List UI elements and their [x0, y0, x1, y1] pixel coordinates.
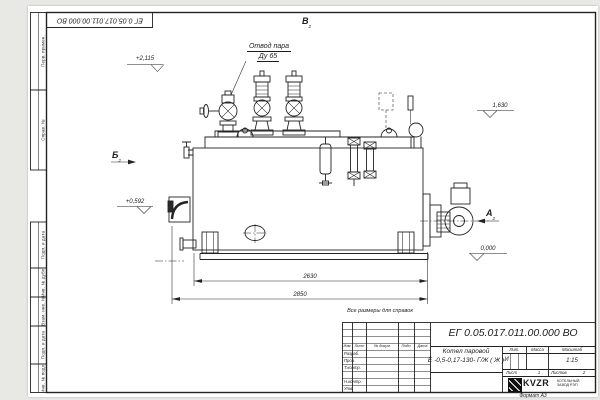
view-label-v: В2 [302, 12, 311, 30]
elevation-ground: 0,000 [480, 246, 495, 252]
level-rod [408, 96, 413, 124]
lit-value: И [504, 357, 508, 363]
water-column [319, 137, 332, 185]
row-razrab: Разраб. [344, 352, 359, 356]
margin-label-perv-primen: Перв. примен. [40, 35, 45, 67]
steam-leader [231, 61, 246, 95]
sheets-value: 2 [583, 371, 586, 376]
col-doc: № докум. [374, 345, 391, 349]
row-tkontr: Т.контр. [344, 366, 361, 370]
company-name-line2: ЗАВОД РЭП [557, 383, 580, 387]
drawing-canvas [0, 0, 600, 400]
safety-valve-1 [251, 71, 273, 135]
view-sheet-ref-a: 2 [493, 216, 496, 221]
sheets-label: Листов [551, 371, 567, 375]
burner [423, 183, 473, 246]
drawing-sheet: ЕГ 0.05.017.011.00.000 ВО Перв. примен. … [0, 0, 600, 400]
designation-top: ЕГ 0.05.017.011.00.000 ВО [57, 17, 143, 24]
row-utv: Утв. [344, 387, 354, 391]
sheet-value: 1 [538, 371, 541, 376]
margin-label-inv-dubl: Инв. № дубл. [40, 267, 45, 297]
row-prov: Пров. [344, 359, 355, 363]
product-name-line2: Е -0,5-0,17-130- Г/Ж ( Ж ) [428, 358, 504, 365]
col-data: Дата [417, 345, 427, 349]
margin-label-podp-data-2: Подп. и дата [40, 331, 45, 359]
format-label: Формат А3 [519, 394, 546, 399]
view-label-a: А2 [486, 204, 495, 222]
elevation-front: +0,592 [126, 199, 145, 205]
margin-label-vzam-inv: Взам. инв. № [40, 296, 45, 326]
margin-label-inv-podl: Инв. № подл. [40, 363, 45, 393]
level-gauges [348, 138, 376, 186]
company-name: КОТЕЛЬНЫЙ ЗАВОД РЭП [557, 379, 580, 388]
view-sheet-ref-b: 2 [118, 158, 121, 163]
manhole-axes [243, 224, 267, 243]
company-logo-icon [508, 378, 522, 392]
sensor-dashed [379, 93, 393, 130]
view-label-b: Б2 [112, 146, 121, 164]
col-list: Лист [355, 345, 365, 349]
sheet-label: Лист [506, 371, 517, 375]
scale-value: 1:15 [566, 358, 578, 364]
steam-valve [200, 91, 238, 137]
lifting-lugs [237, 128, 397, 137]
col-izm: Изм. [343, 345, 351, 349]
reference-note: Все размеры для справок [347, 309, 413, 315]
dim-shell-length: 2630 [303, 274, 316, 280]
supports [200, 232, 428, 260]
scale-header: Масштаб [562, 348, 582, 352]
company-logo-text: KVZR [523, 379, 549, 388]
mass-header: Масса [531, 348, 544, 352]
product-name-line1: Котел паровой [443, 349, 490, 356]
boiler-shell [193, 131, 423, 250]
flue-outlet [409, 123, 423, 148]
margin-label-podp-data-1: Подп. и дата [40, 231, 45, 259]
safety-valve-2 [283, 71, 305, 135]
elevation-valves: +2,115 [136, 56, 154, 62]
steam-outlet-label-line2: Ду 65 [257, 53, 279, 62]
row-nkontr: Н.контр. [344, 380, 362, 384]
col-podp: Подп. [401, 345, 411, 349]
title-designation: ЕГ 0.05.017.011.00.000 ВО [448, 328, 577, 339]
elevation-marks [117, 65, 514, 261]
margin-label-sprav-no: Справ. № [40, 119, 45, 141]
steam-outlet-label-line1: Отвод пара [247, 43, 291, 52]
dim-overall-length: 2850 [293, 292, 306, 298]
elevation-rear: 1,630 [492, 103, 507, 109]
lit-header: Лит. [509, 348, 519, 352]
view-sheet-ref-v: 2 [309, 24, 312, 29]
